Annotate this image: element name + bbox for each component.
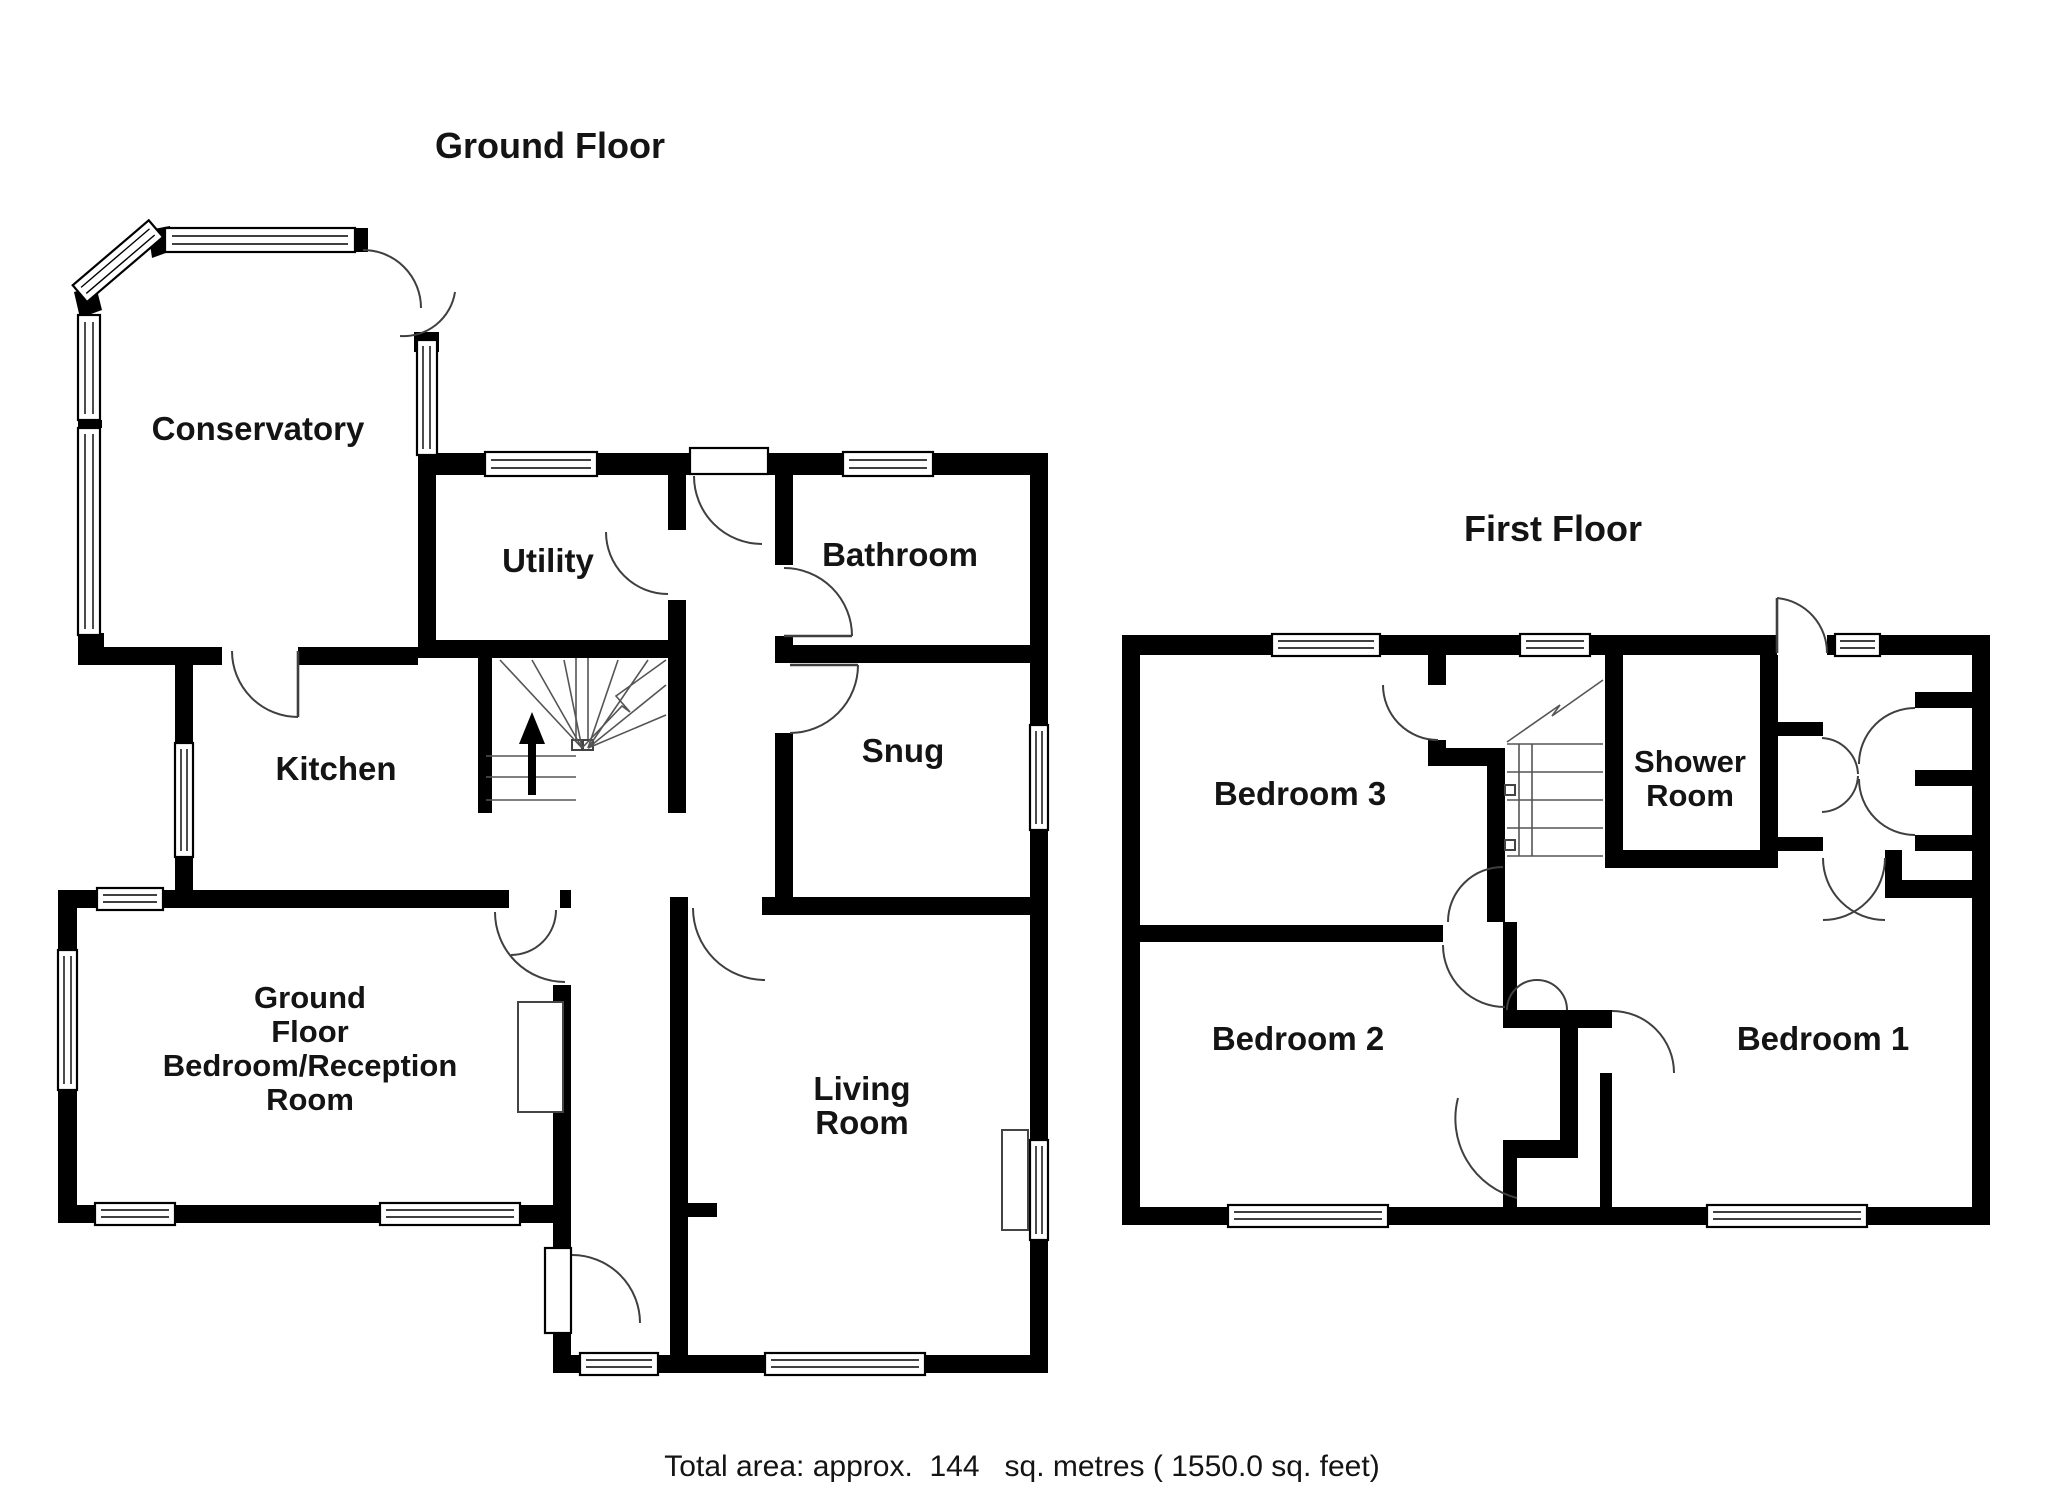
room-label-utility: Utility [502, 542, 594, 579]
first-floor-plan: First Floor Bedroom 3 Shower Room Bedroo… [1122, 508, 1990, 1227]
ground-floor-stairs [486, 658, 666, 800]
bathroom-door-arc [784, 568, 852, 636]
reception-west-window [58, 950, 77, 1090]
snug-door-arc [790, 665, 858, 733]
room-label-reception: Ground Floor Bedroom/Reception Room [163, 980, 458, 1117]
snug-east-window [1030, 725, 1048, 830]
front-door-top [690, 448, 768, 474]
bathroom-window [843, 452, 933, 476]
conservatory-right-window [417, 340, 437, 455]
svg-text:Bedroom/Reception: Bedroom/Reception [163, 1048, 458, 1083]
room-label-bathroom: Bathroom [822, 536, 978, 573]
room-label-bedroom3: Bedroom 3 [1214, 775, 1386, 812]
ground-floor-title: Ground Floor [435, 125, 665, 166]
living-east-window [1030, 1140, 1048, 1240]
kitchen-hall-door-arc [511, 910, 556, 955]
cubby-door-arc-1 [1859, 708, 1915, 764]
kitchen-door-arc [232, 651, 298, 717]
conservatory-door-arc-1 [363, 250, 421, 308]
landing-hall-door-arc-2 [1823, 858, 1885, 920]
room-label-conservatory: Conservatory [152, 410, 365, 447]
utility-door-arc [606, 532, 668, 594]
reception-north-window [97, 888, 163, 910]
conservatory-door-arc-2 [400, 292, 455, 336]
stairs-up-arrow-icon [519, 712, 545, 795]
reception-bottom-window-right [380, 1203, 520, 1225]
ground-floor-closets [518, 1002, 1028, 1230]
bedroom1-door-arc [1612, 1011, 1674, 1073]
room-label-living: Living Room [813, 1070, 910, 1141]
first-floor-walls [1122, 635, 1990, 1225]
footer-total-area: Total area: approx. 144 sq. metres ( 155… [664, 1450, 1379, 1483]
svg-text:Room: Room [815, 1104, 909, 1141]
room-label-kitchen: Kitchen [275, 750, 396, 787]
bedroom3-window [1272, 634, 1380, 656]
svg-text:Shower: Shower [1634, 744, 1746, 779]
svg-text:Room: Room [266, 1082, 354, 1117]
floorplan-page: Ground Floor Conservatory Utility Bathro… [0, 0, 2048, 1490]
svg-text:Living: Living [813, 1070, 910, 1107]
cubby-door-arc-2 [1859, 779, 1915, 835]
front-door-top-arc [694, 476, 762, 544]
airing-cupboard-arc-1 [1822, 738, 1858, 774]
svg-text:Floor: Floor [271, 1014, 349, 1049]
conservatory-left-window-lower [78, 428, 100, 635]
svg-text:Ground: Ground [254, 980, 366, 1015]
living-chimney-recess [1002, 1130, 1028, 1230]
room-label-bedroom1: Bedroom 1 [1737, 1020, 1909, 1057]
reception-wardrobe [518, 1002, 563, 1112]
bedroom3-door-arc [1383, 685, 1438, 740]
front-door-bottom [545, 1248, 571, 1333]
cupboard-double-arc-2 [1537, 980, 1567, 1010]
hall-bottom-window [580, 1353, 658, 1375]
conservatory-top-window [165, 228, 355, 252]
bedroom2-window [1228, 1205, 1388, 1227]
stairwell-window [1520, 634, 1590, 656]
ground-floor-plan: Ground Floor Conservatory Utility Bathro… [58, 125, 1048, 1375]
reception-bottom-window-left [95, 1203, 175, 1225]
first-floor-title: First Floor [1464, 508, 1642, 549]
utility-window [485, 452, 597, 476]
kitchen-window [175, 743, 193, 857]
room-label-bedroom2: Bedroom 2 [1212, 1020, 1384, 1057]
airing-cupboard-arc-2 [1822, 776, 1858, 812]
bedroom2-door-arc [1443, 945, 1505, 1007]
room-label-shower-room: Shower Room [1634, 744, 1746, 813]
room-label-snug: Snug [862, 732, 944, 769]
landing-hall-door-arc-1 [1823, 858, 1885, 920]
svg-text:Room: Room [1646, 778, 1734, 813]
conservatory-angled-window [73, 220, 163, 302]
first-floor-stairs [1505, 680, 1603, 856]
living-bottom-window [765, 1353, 925, 1375]
living-door-arc [693, 908, 765, 980]
landing-entry-door-arc [1777, 598, 1827, 653]
landing-window [1835, 634, 1880, 656]
first-floor-doors [1383, 598, 1915, 1198]
floorplan-canvas: Ground Floor Conservatory Utility Bathro… [0, 0, 2048, 1490]
bedroom1-window [1707, 1205, 1867, 1227]
conservatory-left-window-upper [78, 315, 100, 420]
front-door-bottom-arc [572, 1255, 640, 1323]
